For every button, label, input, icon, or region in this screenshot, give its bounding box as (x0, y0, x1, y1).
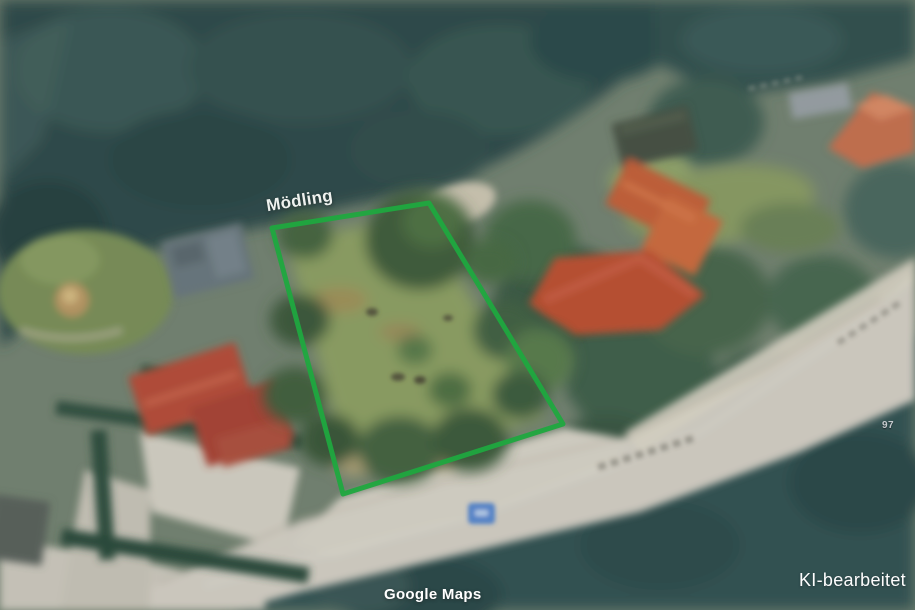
map-viewport: Mödling 97 Google Maps KI-bearbeitet (0, 0, 915, 610)
google-maps-attribution[interactable]: Google Maps (384, 586, 481, 603)
ai-edited-watermark: KI-bearbeitet (799, 570, 906, 591)
house-number-label: 97 (882, 420, 894, 431)
satellite-canvas[interactable] (0, 0, 915, 610)
haze-overlay (0, 0, 915, 610)
